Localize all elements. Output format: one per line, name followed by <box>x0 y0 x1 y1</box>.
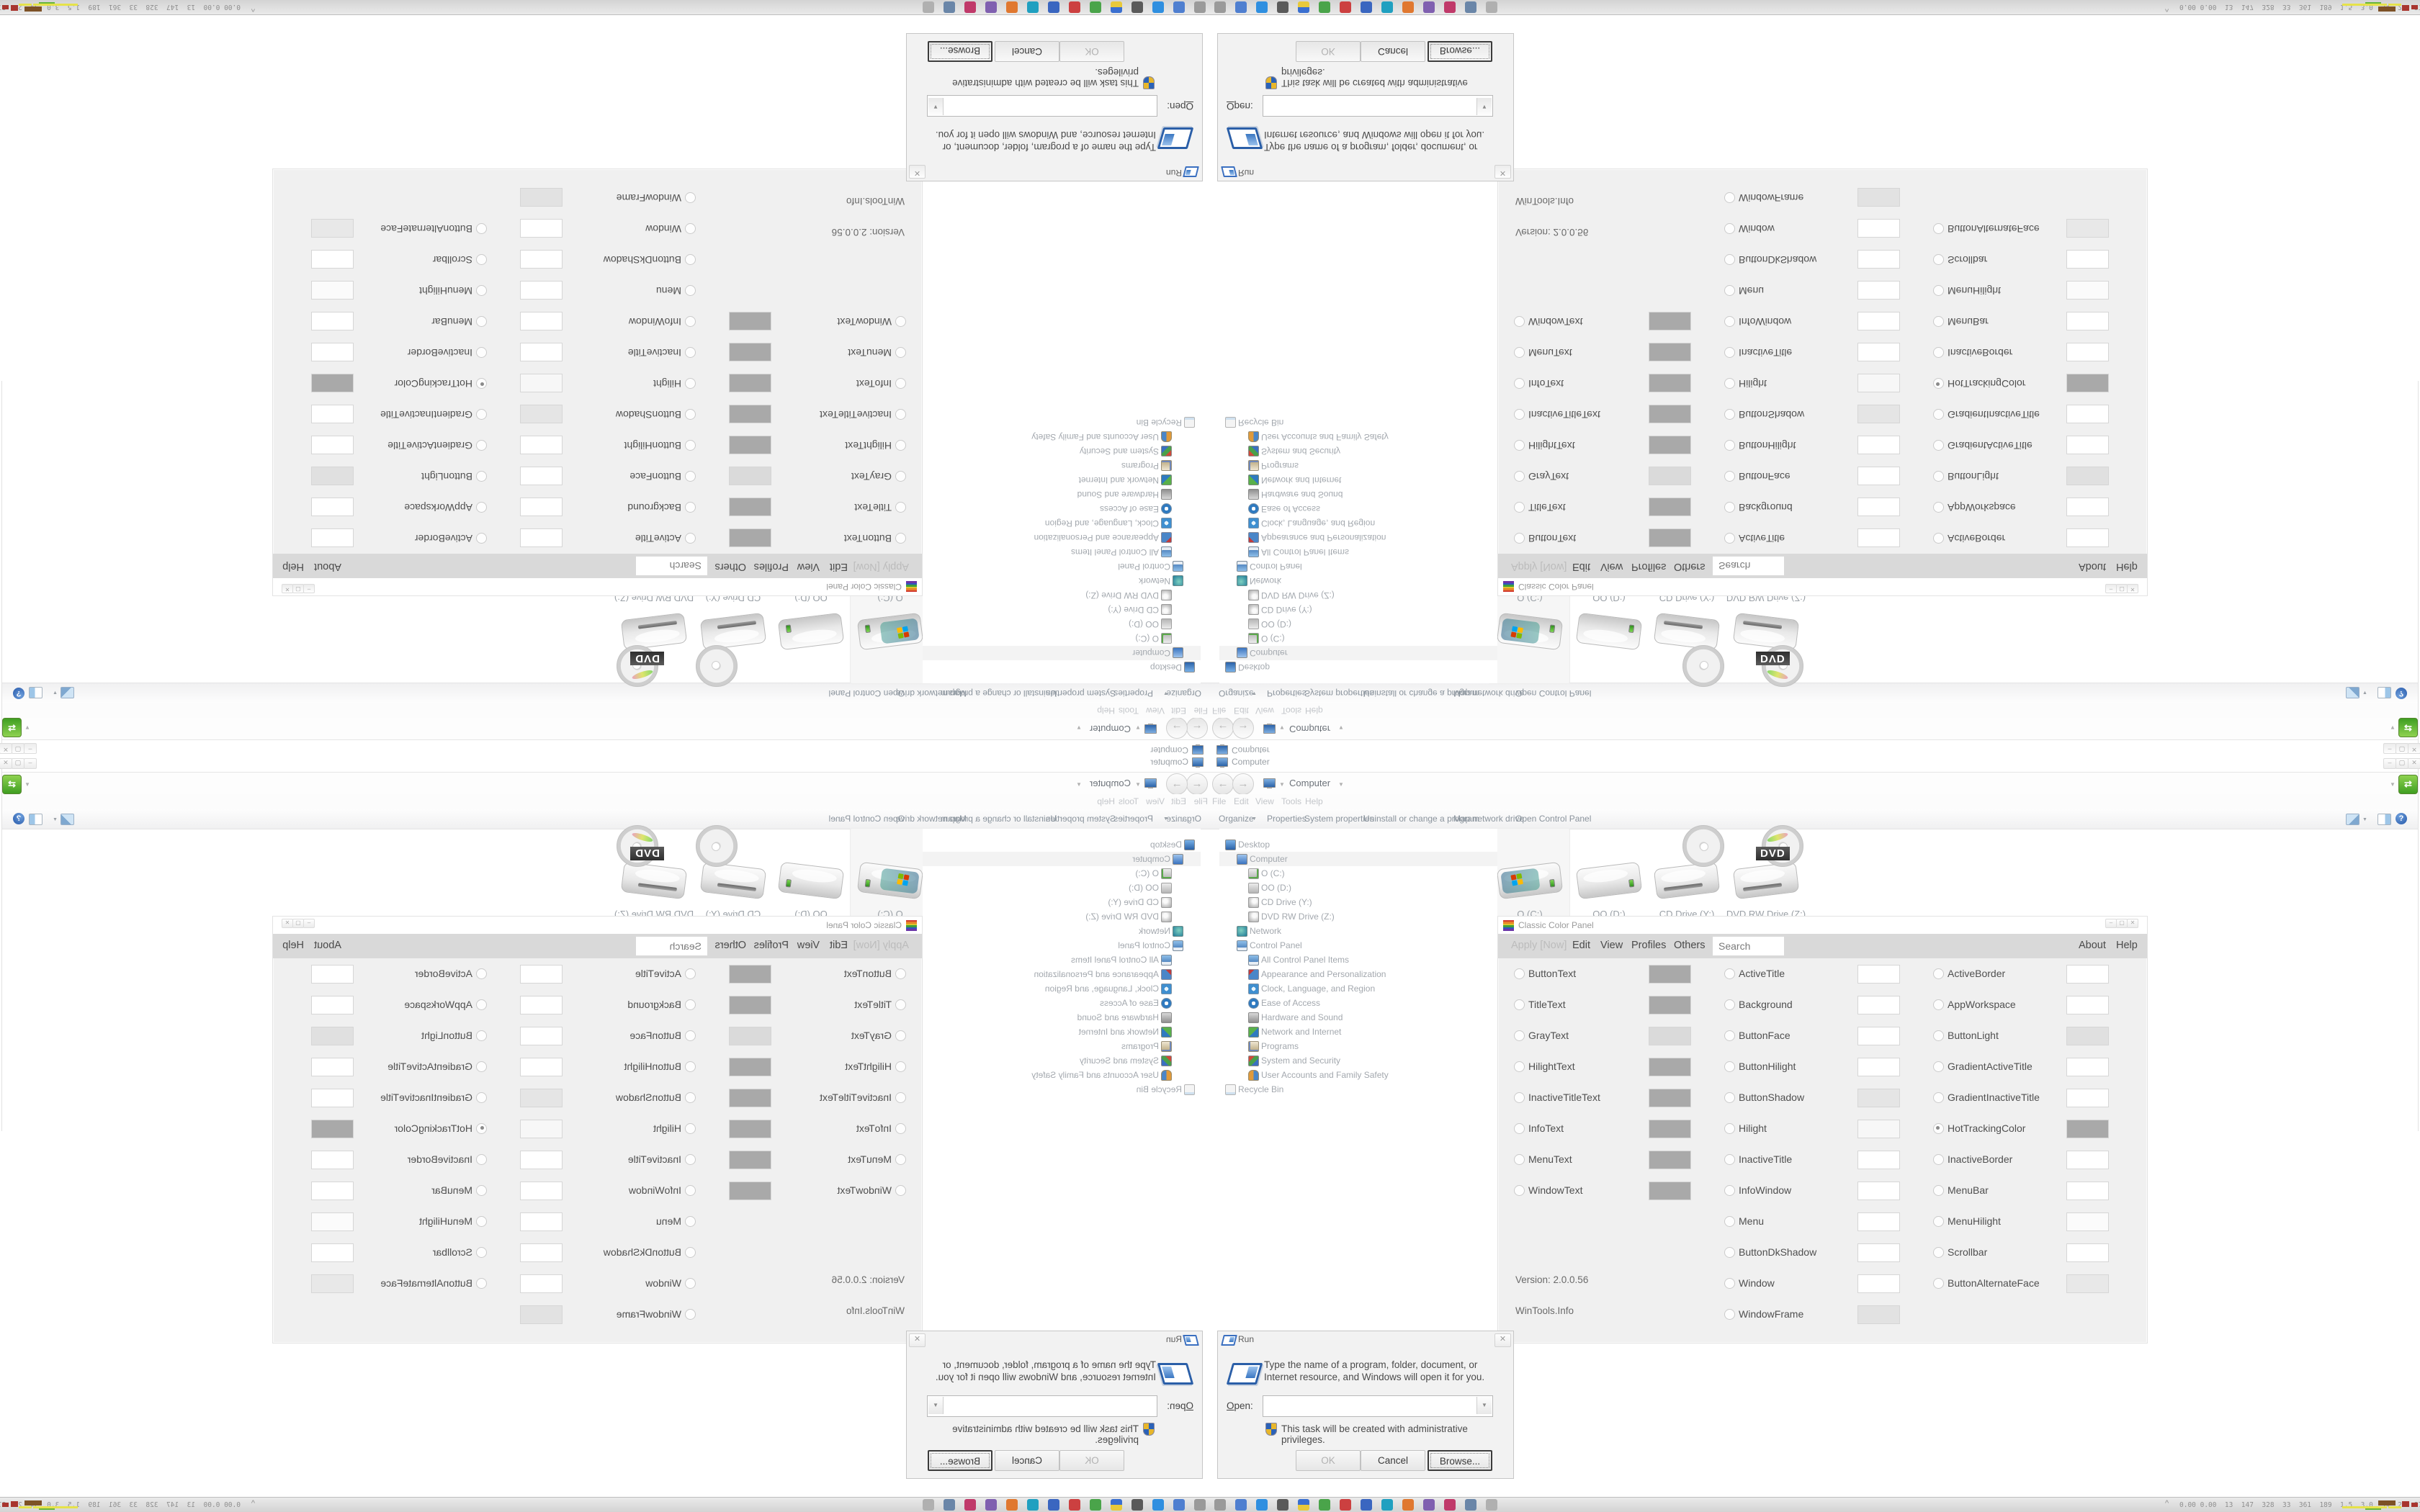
app-icon[interactable] <box>1027 1 1039 13</box>
color-swatch-Window[interactable] <box>520 219 563 238</box>
app-icon[interactable] <box>1194 1 1206 13</box>
app-icon[interactable] <box>1444 1 1456 13</box>
color-swatch-ButtonDkShadow[interactable] <box>1857 1243 1900 1262</box>
menu-item-tools[interactable]: Tools <box>1119 796 1139 806</box>
color-swatch-MenuHilight[interactable] <box>311 281 354 300</box>
address-dropdown-icon[interactable]: ▼ <box>2390 724 2396 731</box>
app-icon[interactable] <box>1486 1 1497 13</box>
forward-icon[interactable]: → <box>1166 773 1188 795</box>
radio-GrayText[interactable] <box>1514 1030 1525 1041</box>
tree-item[interactable]: Programs <box>923 1039 1201 1053</box>
radio-ButtonText[interactable] <box>895 533 906 544</box>
taskbar[interactable]: ^ 0.00 0.00 13 147 328 33 361 189 1.5 3.… <box>0 1497 1210 1512</box>
app-icon[interactable] <box>1277 1 1289 13</box>
tree-item[interactable]: Network and Internet <box>1219 473 1497 487</box>
color-swatch-Hilight[interactable] <box>520 1120 563 1138</box>
tree-item[interactable]: DVD RW Drive (Z:) <box>923 588 1201 603</box>
color-swatch-MenuBar[interactable] <box>2066 1182 2109 1200</box>
radio-HilightText[interactable] <box>895 1061 906 1072</box>
color-swatch-ButtonShadow[interactable] <box>1857 1089 1900 1107</box>
app-icon[interactable] <box>1423 1 1435 13</box>
minimize-icon[interactable]: – <box>2105 919 2117 928</box>
color-swatch-InfoText[interactable] <box>1649 374 1691 392</box>
maximize-icon[interactable]: ▢ <box>2116 584 2128 593</box>
preview-pane-icon[interactable] <box>2378 687 2391 698</box>
chevron-down-icon[interactable]: ▼ <box>2362 817 2367 822</box>
browse-button[interactable]: Browse... <box>928 41 992 62</box>
tree-item[interactable]: Network and Internet <box>923 1025 1201 1039</box>
ccp-menu-profiles[interactable]: Profiles <box>1631 561 1666 572</box>
radio-Background[interactable] <box>685 502 696 513</box>
color-swatch-ButtonAlternateFace[interactable] <box>311 219 354 238</box>
tree-item[interactable]: Recycle Bin <box>923 1082 1201 1097</box>
toolbar-item[interactable]: Map network drive <box>896 688 967 698</box>
radio-InactiveBorder[interactable] <box>476 1154 487 1165</box>
ccp-menu-view[interactable]: View <box>797 940 820 951</box>
app-icon[interactable] <box>1069 1499 1080 1511</box>
drive-item[interactable]: O (C:) <box>851 586 928 684</box>
ccp-search-input[interactable]: Search <box>1713 557 1784 575</box>
color-swatch-WindowText[interactable] <box>729 312 771 330</box>
toolbar-item[interactable]: Open Control Panel <box>1515 814 1591 824</box>
color-swatch-InfoText[interactable] <box>1649 1120 1691 1138</box>
menu-item-view[interactable]: View <box>1146 706 1165 716</box>
radio-InactiveTitle[interactable] <box>685 1154 696 1165</box>
color-swatch-ButtonHilight[interactable] <box>520 436 563 454</box>
drive-item[interactable]: O (C:) <box>1492 586 1569 684</box>
app-icon[interactable] <box>985 1499 997 1511</box>
flag-app-icon[interactable] <box>1298 1499 1309 1511</box>
radio-HotTrackingColor[interactable] <box>476 1123 487 1134</box>
color-swatch-InactiveTitle[interactable] <box>1857 343 1900 361</box>
color-swatch-InactiveTitleText[interactable] <box>1649 1089 1691 1107</box>
menu-item-file[interactable]: File <box>1212 706 1226 716</box>
radio-Window[interactable] <box>685 223 696 234</box>
app-icon[interactable] <box>1235 1 1247 13</box>
app-icon[interactable] <box>1152 1499 1164 1511</box>
ccp-menu-help[interactable]: Help <box>282 940 304 951</box>
app-icon[interactable] <box>1131 1 1143 13</box>
color-swatch-ButtonLight[interactable] <box>311 467 354 485</box>
tree-item[interactable]: Recycle Bin <box>923 415 1201 430</box>
ccp-search-input[interactable]: Search <box>636 937 707 955</box>
tree-item[interactable]: Programs <box>923 459 1201 473</box>
radio-ButtonHilight[interactable] <box>685 440 696 451</box>
color-swatch-ButtonText[interactable] <box>1649 528 1691 547</box>
vendor-link[interactable]: WinTools.Info <box>846 196 905 207</box>
color-swatch-GradientActiveTitle[interactable] <box>2066 436 2109 454</box>
tree-item[interactable]: Appearance and Personalization <box>923 967 1201 981</box>
app-icon[interactable] <box>1361 1 1372 13</box>
radio-ButtonFace[interactable] <box>1724 471 1735 482</box>
radio-MenuText[interactable] <box>895 347 906 358</box>
address-dropdown-icon[interactable]: ▼ <box>24 781 30 788</box>
color-swatch-InactiveTitleText[interactable] <box>729 1089 771 1107</box>
radio-MenuHilight[interactable] <box>476 285 487 296</box>
radio-ButtonHilight[interactable] <box>1724 440 1735 451</box>
color-swatch-HilightText[interactable] <box>1649 436 1691 454</box>
ccp-menu-about[interactable]: About <box>2079 561 2106 572</box>
tree-item[interactable]: Programs <box>1219 459 1497 473</box>
app-icon[interactable] <box>1465 1 1476 13</box>
app-icon[interactable] <box>1090 1499 1101 1511</box>
minimize-icon[interactable]: – <box>24 758 37 769</box>
toolbar-item[interactable]: Map network drive <box>896 814 967 824</box>
maximize-icon[interactable]: ▢ <box>2116 919 2128 928</box>
tree-item[interactable]: Clock, Language, and Region <box>1219 981 1497 996</box>
color-swatch-GradientActiveTitle[interactable] <box>311 436 354 454</box>
minimize-icon[interactable]: – <box>2383 758 2396 769</box>
color-swatch-MenuHilight[interactable] <box>311 1212 354 1231</box>
menu-item-help[interactable]: Help <box>1305 706 1323 716</box>
color-swatch-ActiveTitle[interactable] <box>1857 965 1900 984</box>
color-swatch-ActiveBorder[interactable] <box>311 965 354 984</box>
drive-item[interactable]: OO (D:) <box>1572 586 1648 684</box>
taskbar[interactable]: ^ 0.00 0.00 13 147 328 33 361 189 1.5 3.… <box>1210 1497 2420 1512</box>
radio-GradientInactiveTitle[interactable] <box>1933 1092 1944 1103</box>
chevron-down-icon[interactable]: ▼ <box>53 690 58 695</box>
chevron-down-icon[interactable]: ▼ <box>2362 690 2367 695</box>
breadcrumb[interactable]: Computer <box>1090 778 1131 788</box>
ok-button[interactable]: OK <box>1296 41 1361 62</box>
radio-Window[interactable] <box>1724 223 1735 234</box>
radio-ButtonLight[interactable] <box>1933 471 1944 482</box>
radio-ButtonText[interactable] <box>1514 968 1525 979</box>
show-hidden-icons-chevron[interactable]: ^ <box>2165 1499 2169 1508</box>
minimize-icon[interactable]: – <box>2383 743 2396 754</box>
radio-ActiveTitle[interactable] <box>685 533 696 544</box>
radio-HilightText[interactable] <box>895 440 906 451</box>
color-swatch-TitleText[interactable] <box>729 996 771 1014</box>
radio-AppWorkspace[interactable] <box>476 999 487 1010</box>
radio-GradientActiveTitle[interactable] <box>476 1061 487 1072</box>
cancel-button[interactable]: Cancel <box>1361 41 1425 62</box>
tree-item[interactable]: Ease of Access <box>1219 502 1497 516</box>
tree-item[interactable]: Hardware and Sound <box>1219 1010 1497 1025</box>
drive-item[interactable]: OO (D:) <box>772 828 848 926</box>
color-swatch-GrayText[interactable] <box>1649 1027 1691 1045</box>
color-swatch-Window[interactable] <box>1857 219 1900 238</box>
tree-item[interactable]: All Control Panel Items <box>1219 545 1497 559</box>
close-icon[interactable]: ✕ <box>2127 919 2138 928</box>
color-swatch-GradientActiveTitle[interactable] <box>311 1058 354 1076</box>
maximize-icon[interactable]: ▢ <box>12 743 24 754</box>
radio-ButtonLight[interactable] <box>1933 1030 1944 1041</box>
menu-item-tools[interactable]: Tools <box>1119 706 1139 716</box>
app-icon[interactable] <box>1381 1499 1393 1511</box>
color-swatch-WindowText[interactable] <box>729 1182 771 1200</box>
color-swatch-InactiveBorder[interactable] <box>2066 343 2109 361</box>
chevron-down-icon[interactable]: ▼ <box>1338 781 1344 788</box>
color-swatch-ButtonDkShadow[interactable] <box>1857 250 1900 269</box>
radio-ButtonDkShadow[interactable] <box>1724 254 1735 265</box>
toolbar-item[interactable]: Properties <box>1267 814 1307 824</box>
browse-button[interactable]: Browse... <box>1428 1450 1492 1471</box>
color-swatch-InactiveBorder[interactable] <box>2066 1151 2109 1169</box>
radio-WindowFrame[interactable] <box>685 1309 696 1320</box>
menu-item-help[interactable]: Help <box>1097 796 1115 806</box>
radio-WindowText[interactable] <box>1514 1185 1525 1196</box>
radio-InactiveTitleText[interactable] <box>1514 409 1525 420</box>
maximize-icon[interactable]: ▢ <box>2396 743 2408 754</box>
radio-GradientInactiveTitle[interactable] <box>476 1092 487 1103</box>
color-swatch-ButtonLight[interactable] <box>311 1027 354 1045</box>
app-icon[interactable] <box>1152 1 1164 13</box>
tree-item[interactable]: Hardware and Sound <box>923 487 1201 502</box>
color-swatch-WindowFrame[interactable] <box>520 188 563 207</box>
back-icon[interactable]: ← <box>1186 717 1208 739</box>
tree-item[interactable]: Ease of Access <box>923 996 1201 1010</box>
ccp-menu-help[interactable]: Help <box>2116 940 2138 951</box>
chevron-down-icon[interactable]: ▼ <box>1135 724 1141 731</box>
close-icon[interactable]: ✕ <box>1494 1333 1511 1347</box>
radio-Window[interactable] <box>685 1278 696 1289</box>
color-swatch-WindowFrame[interactable] <box>1857 1305 1900 1324</box>
radio-WindowText[interactable] <box>895 1185 906 1196</box>
taskbar[interactable]: ^ 0.00 0.00 13 147 328 33 361 189 1.5 3.… <box>1210 0 2420 15</box>
drive-item[interactable]: OO (D:) <box>1572 828 1648 926</box>
menu-item-edit[interactable]: Edit <box>1234 796 1249 806</box>
radio-Menu[interactable] <box>685 285 696 296</box>
color-swatch-Scrollbar[interactable] <box>2066 1243 2109 1262</box>
vendor-link[interactable]: WinTools.Info <box>1515 1305 1574 1316</box>
app-icon[interactable] <box>1402 1499 1414 1511</box>
color-swatch-AppWorkspace[interactable] <box>2066 996 2109 1014</box>
color-swatch-MenuBar[interactable] <box>311 312 354 330</box>
color-swatch-MenuBar[interactable] <box>2066 312 2109 330</box>
tree-item[interactable]: Clock, Language, and Region <box>923 516 1201 531</box>
color-swatch-MenuHilight[interactable] <box>2066 1212 2109 1231</box>
radio-Scrollbar[interactable] <box>1933 254 1944 265</box>
radio-Background[interactable] <box>685 999 696 1010</box>
close-icon[interactable]: ✕ <box>282 584 293 593</box>
color-swatch-ButtonAlternateFace[interactable] <box>2066 219 2109 238</box>
app-icon[interactable] <box>1006 1499 1018 1511</box>
radio-MenuBar[interactable] <box>476 316 487 327</box>
ccp-menu-others[interactable]: Others <box>714 561 746 572</box>
app-icon[interactable] <box>1173 1 1185 13</box>
app-icon[interactable] <box>964 1 976 13</box>
color-swatch-TitleText[interactable] <box>1649 498 1691 516</box>
app-icon[interactable] <box>1423 1499 1435 1511</box>
color-swatch-ButtonFace[interactable] <box>520 467 563 485</box>
color-swatch-WindowText[interactable] <box>1649 312 1691 330</box>
radio-InfoText[interactable] <box>1514 1123 1525 1134</box>
chevron-down-icon[interactable]: ▼ <box>1135 781 1141 788</box>
toolbar-item[interactable]: Open Control Panel <box>829 814 905 824</box>
radio-InfoWindow[interactable] <box>685 1185 696 1196</box>
flag-app-icon[interactable] <box>1111 1 1122 13</box>
app-icon[interactable] <box>1006 1 1018 13</box>
radio-AppWorkspace[interactable] <box>476 502 487 513</box>
color-swatch-InactiveTitle[interactable] <box>1857 1151 1900 1169</box>
views-icon[interactable] <box>60 814 74 825</box>
views-icon[interactable] <box>60 687 74 698</box>
peek-computer-label[interactable]: Computer <box>1150 745 1188 755</box>
maximize-icon[interactable]: ▢ <box>2396 758 2408 769</box>
radio-InfoText[interactable] <box>1514 378 1525 389</box>
color-swatch-ButtonText[interactable] <box>1649 965 1691 984</box>
menu-item-view[interactable]: View <box>1255 796 1274 806</box>
color-swatch-Scrollbar[interactable] <box>2066 250 2109 269</box>
tree-item[interactable]: User Accounts and Family Safety <box>923 1068 1201 1082</box>
ccp-menu-about[interactable]: About <box>2079 940 2106 951</box>
radio-MenuHilight[interactable] <box>476 1216 487 1227</box>
tree-item[interactable]: CD Drive (Y:) <box>923 603 1201 617</box>
help-icon[interactable]: ? <box>13 688 24 699</box>
tree-item[interactable]: Clock, Language, and Region <box>1219 516 1497 531</box>
open-combobox[interactable]: ▼ <box>927 1395 1157 1417</box>
flag-app-icon[interactable] <box>1298 1 1309 13</box>
color-swatch-ButtonFace[interactable] <box>1857 467 1900 485</box>
radio-ButtonAlternateFace[interactable] <box>1933 223 1944 234</box>
color-swatch-GradientInactiveTitle[interactable] <box>2066 1089 2109 1107</box>
tree-item[interactable]: Control Panel <box>1219 559 1497 574</box>
menu-item-view[interactable]: View <box>1146 796 1165 806</box>
tree-item[interactable]: Desktop <box>923 660 1201 675</box>
radio-ButtonFace[interactable] <box>1724 1030 1735 1041</box>
chevron-down-icon[interactable]: ▼ <box>1279 724 1285 731</box>
color-swatch-InfoWindow[interactable] <box>1857 312 1900 330</box>
drive-item[interactable]: CD Drive (Y:) <box>1649 828 1726 926</box>
color-swatch-GradientInactiveTitle[interactable] <box>2066 405 2109 423</box>
radio-Background[interactable] <box>1724 999 1735 1010</box>
chevron-down-icon[interactable]: ▼ <box>1279 781 1285 788</box>
app-icon[interactable] <box>1340 1 1351 13</box>
radio-WindowText[interactable] <box>1514 316 1525 327</box>
ccp-menu-edit[interactable]: Edit <box>830 561 848 572</box>
color-swatch-InfoWindow[interactable] <box>520 1182 563 1200</box>
organize-button[interactable]: Organize <box>1219 688 1254 698</box>
vendor-link[interactable]: WinTools.Info <box>1515 196 1574 207</box>
radio-MenuText[interactable] <box>1514 347 1525 358</box>
tree-item[interactable]: All Control Panel Items <box>1219 953 1497 967</box>
address-dropdown-icon[interactable]: ▼ <box>2390 781 2396 788</box>
ok-button[interactable]: OK <box>1059 1450 1124 1471</box>
toolbar-item[interactable]: Map network drive <box>1453 688 1524 698</box>
radio-GrayText[interactable] <box>1514 471 1525 482</box>
tree-item[interactable]: O (C:) <box>1219 631 1497 646</box>
radio-ButtonAlternateFace[interactable] <box>1933 1278 1944 1289</box>
color-swatch-HilightText[interactable] <box>729 1058 771 1076</box>
ccp-menu-profiles[interactable]: Profiles <box>754 561 789 572</box>
tree-item[interactable]: Network <box>923 924 1201 938</box>
tree-item[interactable]: Computer <box>923 852 1201 866</box>
radio-ActiveBorder[interactable] <box>476 533 487 544</box>
radio-Hilight[interactable] <box>1724 378 1735 389</box>
color-swatch-Window[interactable] <box>1857 1274 1900 1293</box>
color-swatch-HotTrackingColor[interactable] <box>311 1120 354 1138</box>
app-icon[interactable] <box>1194 1499 1206 1511</box>
radio-ActiveTitle[interactable] <box>1724 533 1735 544</box>
radio-ButtonFace[interactable] <box>685 1030 696 1041</box>
cancel-button[interactable]: Cancel <box>995 1450 1059 1471</box>
minimize-icon[interactable]: – <box>303 584 315 593</box>
radio-InfoWindow[interactable] <box>1724 1185 1735 1196</box>
radio-ButtonShadow[interactable] <box>685 409 696 420</box>
tree-item[interactable]: System and Security <box>923 444 1201 459</box>
color-swatch-ButtonFace[interactable] <box>1857 1027 1900 1045</box>
organize-button[interactable]: Organize <box>1219 814 1254 824</box>
ccp-menu-profiles[interactable]: Profiles <box>1631 940 1666 951</box>
radio-Menu[interactable] <box>685 1216 696 1227</box>
app-icon[interactable] <box>923 1 934 13</box>
app-icon[interactable] <box>923 1499 934 1511</box>
chevron-down-icon[interactable]: ▼ <box>928 1397 944 1414</box>
menu-item-view[interactable]: View <box>1255 706 1274 716</box>
color-swatch-Menu[interactable] <box>1857 281 1900 300</box>
ccp-menu-view[interactable]: View <box>797 561 820 572</box>
app-icon[interactable] <box>1235 1499 1247 1511</box>
views-icon[interactable] <box>2346 814 2359 825</box>
tree-item[interactable]: CD Drive (Y:) <box>923 895 1201 909</box>
app-icon[interactable] <box>1465 1499 1476 1511</box>
color-swatch-ButtonFace[interactable] <box>520 1027 563 1045</box>
peek-computer-label[interactable]: Computer <box>1232 745 1270 755</box>
radio-GradientActiveTitle[interactable] <box>476 440 487 451</box>
color-swatch-Scrollbar[interactable] <box>311 250 354 269</box>
color-swatch-Menu[interactable] <box>520 1212 563 1231</box>
drive-item[interactable]: CD Drive (Y:) <box>694 586 771 684</box>
tree-item[interactable]: DVD RW Drive (Z:) <box>1219 588 1497 603</box>
drive-item[interactable]: O (C:) <box>851 828 928 926</box>
color-swatch-WindowFrame[interactable] <box>520 1305 563 1324</box>
ccp-menu-edit[interactable]: Edit <box>830 940 848 951</box>
radio-TitleText[interactable] <box>1514 502 1525 513</box>
menu-item-tools[interactable]: Tools <box>1281 796 1301 806</box>
tree-item[interactable]: Recycle Bin <box>1219 1082 1497 1097</box>
refresh-icon[interactable]: ⇄ <box>2398 775 2418 794</box>
tree-item[interactable]: System and Security <box>923 1053 1201 1068</box>
back-icon[interactable]: ← <box>1186 773 1208 795</box>
radio-InactiveTitle[interactable] <box>685 347 696 358</box>
radio-ButtonShadow[interactable] <box>1724 409 1735 420</box>
app-icon[interactable] <box>1131 1499 1143 1511</box>
forward-icon[interactable]: → <box>1166 717 1188 739</box>
tree-item[interactable]: Computer <box>1219 646 1497 660</box>
toolbar-item[interactable]: Open Control Panel <box>829 688 905 698</box>
color-swatch-HotTrackingColor[interactable] <box>2066 374 2109 392</box>
ccp-menu-others[interactable]: Others <box>714 940 746 951</box>
color-swatch-ButtonAlternateFace[interactable] <box>2066 1274 2109 1293</box>
radio-ActiveBorder[interactable] <box>1933 968 1944 979</box>
app-icon[interactable] <box>1027 1499 1039 1511</box>
radio-HilightText[interactable] <box>1514 1061 1525 1072</box>
color-swatch-ButtonAlternateFace[interactable] <box>311 1274 354 1293</box>
radio-WindowFrame[interactable] <box>1724 192 1735 203</box>
app-icon[interactable] <box>964 1499 976 1511</box>
tree-item[interactable]: Appearance and Personalization <box>1219 967 1497 981</box>
cancel-button[interactable]: Cancel <box>995 41 1059 62</box>
app-icon[interactable] <box>944 1 955 13</box>
radio-InfoText[interactable] <box>895 378 906 389</box>
preview-pane-icon[interactable] <box>2378 814 2391 825</box>
back-icon[interactable]: ← <box>1212 773 1234 795</box>
color-swatch-Hilight[interactable] <box>1857 374 1900 392</box>
color-swatch-MenuHilight[interactable] <box>2066 281 2109 300</box>
address-dropdown-icon[interactable]: ▼ <box>24 724 30 731</box>
color-swatch-ButtonText[interactable] <box>729 965 771 984</box>
color-swatch-ButtonText[interactable] <box>729 528 771 547</box>
radio-Background[interactable] <box>1724 502 1735 513</box>
radio-InfoText[interactable] <box>895 1123 906 1134</box>
ccp-search-input[interactable]: Search <box>636 557 707 575</box>
color-swatch-Background[interactable] <box>1857 996 1900 1014</box>
minimize-icon[interactable]: – <box>24 743 37 754</box>
cancel-button[interactable]: Cancel <box>1361 1450 1425 1471</box>
color-swatch-ButtonLight[interactable] <box>2066 467 2109 485</box>
close-icon[interactable]: ✕ <box>0 743 12 754</box>
